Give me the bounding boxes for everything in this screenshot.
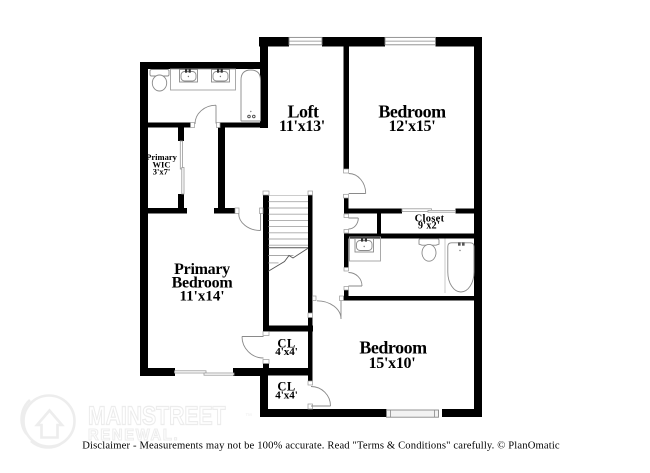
svg-text:™: ™ <box>245 413 252 420</box>
svg-text:9'x2': 9'x2' <box>418 221 440 232</box>
svg-text:11'x13': 11'x13' <box>279 118 325 135</box>
svg-text:4'x4': 4'x4' <box>275 346 298 358</box>
svg-text:11'x14': 11'x14' <box>179 289 224 305</box>
svg-text:3'x7': 3'x7' <box>153 167 170 177</box>
svg-text:4'x4': 4'x4' <box>275 389 298 401</box>
svg-text:15'x10': 15'x10' <box>369 355 416 372</box>
svg-text:12'x15': 12'x15' <box>389 118 436 135</box>
svg-text:Disclaimer - Measurements may: Disclaimer - Measurements may not be 100… <box>82 441 560 452</box>
